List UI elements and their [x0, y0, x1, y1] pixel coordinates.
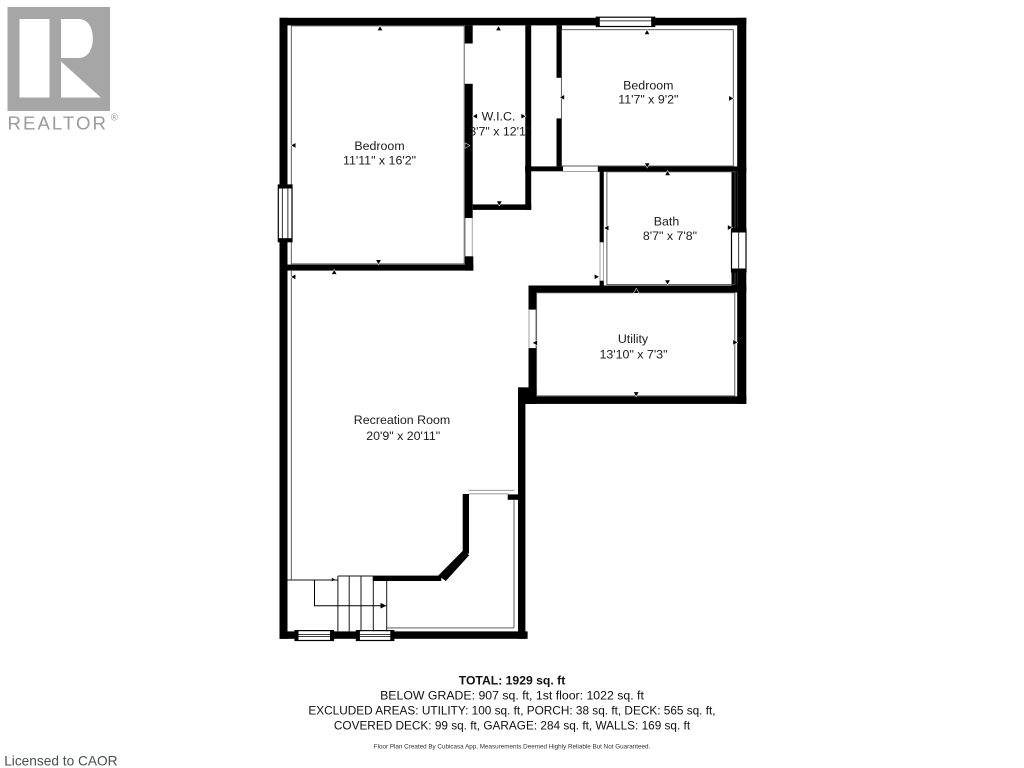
svg-text:TOTAL: 1929 sq. ft: TOTAL: 1929 sq. ft [459, 674, 566, 688]
svg-text:W.I.C.: W.I.C. [482, 109, 516, 123]
svg-text:Bedroom: Bedroom [354, 139, 404, 153]
svg-text:3'7" x 12'1": 3'7" x 12'1" [469, 124, 530, 138]
svg-text:11'11" x 16'2": 11'11" x 16'2" [343, 154, 416, 168]
svg-text:Bath: Bath [654, 214, 680, 228]
svg-text:Utility: Utility [618, 332, 649, 346]
svg-text:8'7" x 7'8": 8'7" x 7'8" [643, 229, 697, 243]
svg-text:11'7" x 9'2": 11'7" x 9'2" [618, 92, 678, 106]
svg-text:REALTOR: REALTOR [8, 112, 109, 133]
svg-text:®: ® [111, 112, 119, 123]
svg-text:Recreation Room: Recreation Room [354, 413, 450, 427]
svg-text:Bedroom: Bedroom [623, 79, 673, 93]
svg-text:Licensed to CAOR: Licensed to CAOR [4, 754, 117, 768]
svg-text:Floor Plan Created By Cubicasa: Floor Plan Created By Cubicasa App. Meas… [374, 744, 651, 751]
svg-text:BELOW GRADE: 907 sq. ft, 1st f: BELOW GRADE: 907 sq. ft, 1st floor: 1022… [380, 689, 644, 703]
svg-text:13'10" x 7'3": 13'10" x 7'3" [600, 347, 668, 361]
svg-text:COVERED DECK: 99 sq. ft, GARAG: COVERED DECK: 99 sq. ft, GARAGE: 284 sq.… [334, 719, 691, 733]
svg-text:EXCLUDED AREAS: UTILITY: 100 s: EXCLUDED AREAS: UTILITY: 100 sq. ft, POR… [308, 704, 715, 718]
svg-text:20'9" x 20'11": 20'9" x 20'11" [366, 429, 440, 443]
